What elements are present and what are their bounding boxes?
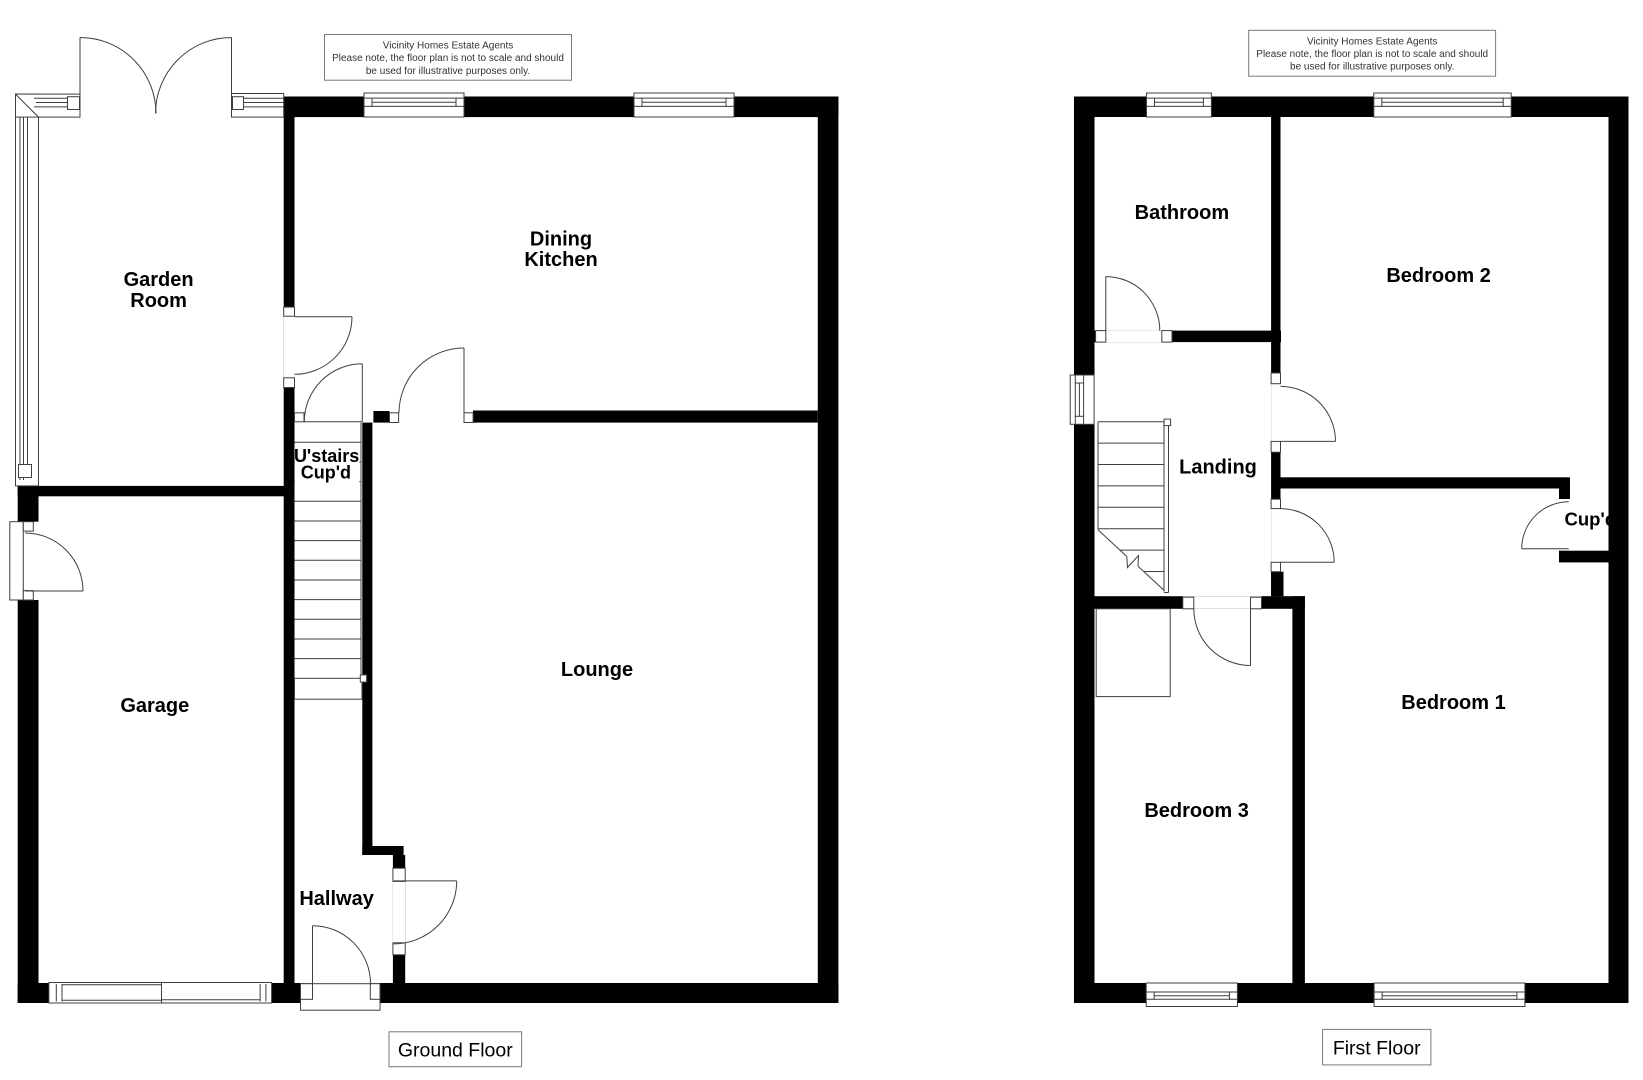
svg-text:Please note, the floor plan is: Please note, the floor plan is not to sc… (332, 53, 564, 64)
svg-text:Vicinity Homes Estate Agents: Vicinity Homes Estate Agents (383, 41, 513, 52)
svg-text:Please note, the floor plan is: Please note, the floor plan is not to sc… (1256, 49, 1488, 60)
svg-text:Bathroom: Bathroom (1135, 202, 1229, 224)
svg-text:Bedroom 1: Bedroom 1 (1401, 692, 1505, 714)
svg-text:Garage: Garage (120, 695, 189, 717)
svg-text:Bedroom 3: Bedroom 3 (1144, 800, 1248, 822)
svg-text:Cup'd: Cup'd (301, 463, 351, 483)
svg-text:Room: Room (130, 290, 187, 312)
svg-text:Bedroom 2: Bedroom 2 (1386, 265, 1490, 287)
svg-text:Cup'd: Cup'd (1564, 509, 1616, 530)
svg-text:Hallway: Hallway (299, 888, 374, 910)
svg-text:Dining: Dining (530, 229, 592, 251)
svg-text:Garden: Garden (124, 269, 194, 291)
svg-text:Kitchen: Kitchen (524, 249, 597, 271)
svg-text:First Floor: First Floor (1333, 1038, 1421, 1060)
svg-text:be used for illustrative purpo: be used for illustrative purposes only. (1290, 62, 1454, 73)
svg-text:Landing: Landing (1179, 457, 1257, 479)
svg-text:Lounge: Lounge (561, 659, 633, 681)
svg-text:be used for illustrative purpo: be used for illustrative purposes only. (366, 66, 530, 77)
svg-text:Ground Floor: Ground Floor (398, 1040, 513, 1062)
svg-text:Vicinity Homes Estate Agents: Vicinity Homes Estate Agents (1307, 36, 1437, 47)
